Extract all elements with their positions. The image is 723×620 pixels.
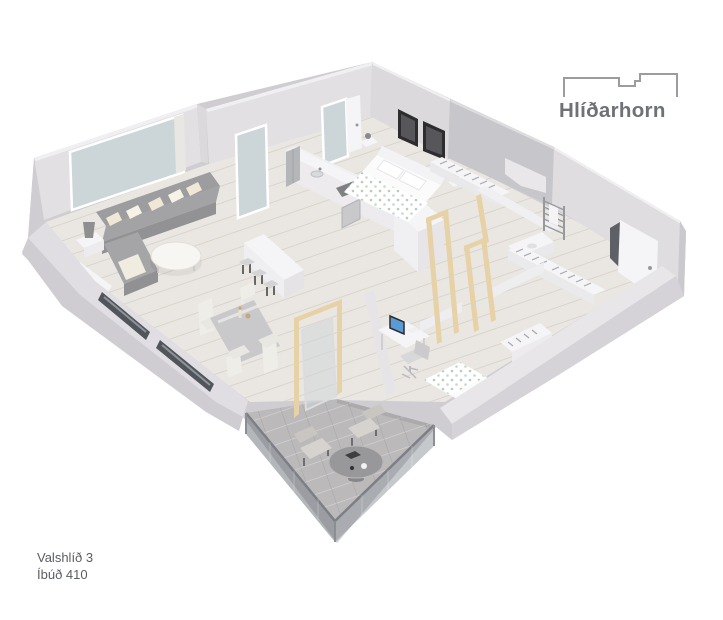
entrance-door-handle [648, 266, 652, 270]
door-frame-jamb [337, 299, 342, 395]
cup [361, 463, 367, 469]
door-handle [356, 124, 359, 127]
table-item [350, 466, 354, 470]
basin [527, 244, 537, 249]
kitchen-tall-window [236, 125, 268, 218]
curtain [174, 114, 186, 174]
bedside-lamp [365, 133, 371, 139]
candle-flame [239, 307, 242, 310]
faucet [319, 168, 322, 171]
balcony-door-leaf [302, 318, 336, 410]
address-block: Valshlíð 3 Íbúð 410 [37, 549, 93, 583]
buildings-skyline-outline-icon [559, 72, 683, 98]
door-frame-jamb [294, 316, 299, 418]
address-street: Valshlíð 3 [37, 549, 93, 566]
table-lamp [83, 222, 95, 238]
bottle [246, 314, 251, 319]
brand-name: Hlíðarhorn [559, 100, 689, 122]
outdoor-table [329, 446, 383, 478]
sink [311, 171, 323, 177]
balcony-white-door [346, 95, 362, 153]
skyline-path [564, 74, 677, 97]
bedroom-window [322, 99, 348, 165]
coffee-table [151, 242, 201, 270]
address-apartment: Íbúð 410 [37, 566, 93, 583]
brand-logo: Hlíðarhorn [559, 72, 689, 122]
